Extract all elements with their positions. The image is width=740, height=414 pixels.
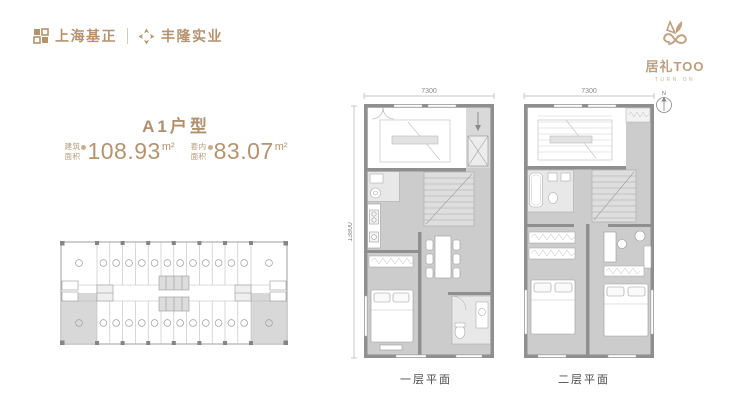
floorplan-page: 上海基正 丰隆实业 居礼TOO TURN ON A1户型 [0, 0, 740, 414]
unit-areas: 建筑 面积 108.93 m² 套内 面积 83.07 m² [56, 140, 296, 163]
floor2-width-dimension: 7300 [524, 88, 654, 99]
north-arrow-icon: N [652, 88, 676, 118]
gross-area: 建筑 面积 108.93 m² [64, 140, 174, 163]
floor1-width-dimension: 7300 [364, 88, 494, 99]
fenglong-logo: 丰隆实业 [138, 26, 223, 46]
stairs [424, 172, 474, 226]
shanghai-jizheng-logo: 上海基正 [33, 26, 117, 46]
inner-area: 套内 面积 83.07 m² [191, 140, 288, 163]
gross-area-label-line2: 面积 [64, 152, 80, 161]
shanghai-jizheng-logo-icon [33, 28, 49, 44]
bathroom-3 [528, 170, 574, 212]
rabbit-logo-icon [657, 20, 693, 54]
footnote-dot-icon [208, 145, 213, 150]
floor2-label: 二层平面 [506, 371, 662, 387]
brand-logo: 居礼TOO TURN ON [636, 20, 714, 83]
brand-tagline: TURN ON [655, 77, 695, 83]
footnote-dot-icon [81, 145, 86, 150]
kitchen [368, 204, 381, 248]
gross-area-label: 建筑 面积 [64, 142, 80, 161]
floor1-plan: 7300 13800 [348, 84, 500, 368]
inner-area-unit: m² [275, 141, 288, 153]
bathroom-2 [452, 296, 491, 344]
floor2-plan: 7300 [508, 84, 660, 368]
svg-text:N: N [662, 91, 666, 97]
brand-name: 居礼TOO [646, 56, 705, 75]
unit-title: A1户型 [56, 112, 296, 137]
gross-area-label-line1: 建筑 [64, 142, 80, 151]
bathroom-1 [368, 172, 400, 202]
dining-table [426, 236, 460, 278]
site-key-plan [58, 237, 292, 353]
inner-area-label-line2: 面积 [191, 152, 207, 161]
floor1-height-dimension: 13800 [348, 106, 357, 358]
inner-area-label: 套内 面积 [191, 142, 207, 161]
svg-text:13800: 13800 [348, 222, 354, 242]
developer-logos: 上海基正 丰隆实业 [33, 26, 223, 46]
fenglong-logo-icon [138, 28, 155, 45]
logo-divider [127, 28, 128, 44]
svg-text:7300: 7300 [581, 88, 597, 95]
floor1-label: 一层平面 [348, 371, 504, 387]
gross-area-unit: m² [162, 141, 175, 153]
developer-1-name: 上海基正 [55, 26, 117, 46]
gross-area-value: 108.93 [87, 140, 160, 163]
inner-area-label-line1: 套内 [191, 142, 207, 151]
stairs [592, 170, 636, 222]
inner-area-value: 83.07 [214, 140, 274, 163]
svg-text:7300: 7300 [421, 88, 437, 95]
developer-2-name: 丰隆实业 [161, 26, 223, 46]
